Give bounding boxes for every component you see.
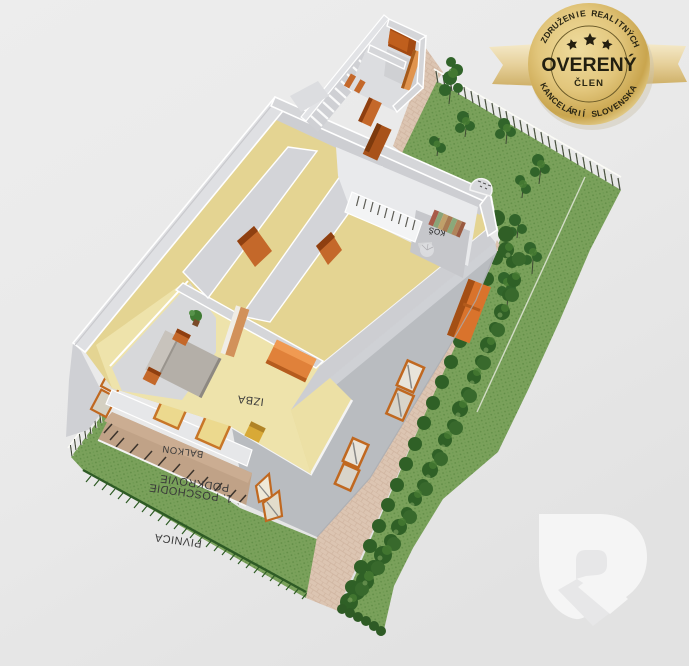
svg-text:ČLEN: ČLEN [574, 77, 604, 89]
svg-text:OVERENÝ: OVERENÝ [541, 52, 636, 76]
